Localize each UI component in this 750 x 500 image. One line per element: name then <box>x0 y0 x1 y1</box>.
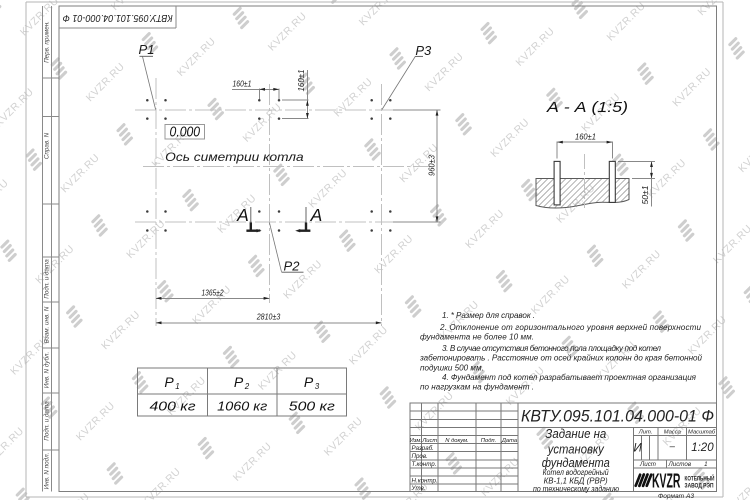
svg-text:P2: P2 <box>284 258 301 273</box>
svg-text:КОТЕЛЬНЫЙ: КОТЕЛЬНЫЙ <box>685 474 715 482</box>
svg-text:1: 1 <box>175 382 179 391</box>
svg-text:KVZR: KVZR <box>652 471 681 493</box>
svg-text:Подп. и дата: Подп. и дата <box>43 401 51 441</box>
svg-text:Разраб.: Разраб. <box>412 445 434 452</box>
svg-text:фундамента не более 10 мм.: фундамента не более 10 мм. <box>420 333 534 342</box>
svg-text:1365±2: 1365±2 <box>202 288 224 298</box>
svg-text:Подп.: Подп. <box>481 438 496 444</box>
svg-text:Справ. N: Справ. N <box>44 132 51 159</box>
svg-text:ЗАВОД РЭП: ЗАВОД РЭП <box>685 484 714 490</box>
svg-text:P: P <box>304 374 314 390</box>
svg-text:Масштаб: Масштаб <box>688 430 716 436</box>
svg-text:Дата: Дата <box>501 438 518 444</box>
svg-text:–: – <box>669 441 676 452</box>
svg-text:1060 кг: 1060 кг <box>217 400 267 414</box>
svg-text:A: A <box>310 205 323 225</box>
svg-text:забетонировать . Расстояние от: забетонировать . Расстояние от осей край… <box>419 354 702 363</box>
svg-text:960±3: 960±3 <box>426 155 436 176</box>
svg-text:3. В случае отсутствия бетонно: 3. В случае отсутствия бетонного пола пл… <box>442 344 661 353</box>
svg-text:Ось симетрии котла: Ось симетрии котла <box>165 150 304 164</box>
svg-text:Лист: Лист <box>639 461 656 468</box>
svg-text:Задание на: Задание на <box>545 426 606 441</box>
svg-text:Утв.: Утв. <box>411 485 426 492</box>
svg-text:Т.контр.: Т.контр. <box>412 461 437 468</box>
svg-text:Инв. N дубл.: Инв. N дубл. <box>43 352 51 388</box>
svg-text:Изм.: Изм. <box>410 438 422 444</box>
svg-text:Перв. примен.: Перв. примен. <box>44 21 51 63</box>
svg-text:50±1: 50±1 <box>640 186 650 205</box>
svg-text:Инв. N подл.: Инв. N подл. <box>43 453 51 490</box>
svg-text:А - А (1:5): А - А (1:5) <box>546 99 628 116</box>
svg-text:2810±3: 2810±3 <box>256 312 281 322</box>
svg-text:160±1: 160±1 <box>575 131 596 141</box>
svg-text:КВТУ.095.101.04.000-01 Ф: КВТУ.095.101.04.000-01 Ф <box>521 407 714 425</box>
svg-text:Подп. и дата: Подп. и дата <box>43 259 51 299</box>
svg-text:P1: P1 <box>139 42 155 57</box>
svg-text:500 кг: 500 кг <box>289 400 335 414</box>
svg-text:Взам. инв. N: Взам. инв. N <box>44 306 51 343</box>
svg-text:N докум.: N докум. <box>445 438 468 444</box>
svg-text:P3: P3 <box>415 43 432 58</box>
svg-text:P: P <box>164 374 174 390</box>
svg-text:Н.контр.: Н.контр. <box>412 477 438 484</box>
svg-text:Пров.: Пров. <box>412 453 428 460</box>
svg-text:Масса: Масса <box>664 430 682 436</box>
svg-text:1. * Размер для справок .: 1. * Размер для справок . <box>442 311 535 320</box>
svg-text:Листов: Листов <box>668 461 692 468</box>
svg-text:1: 1 <box>704 461 707 468</box>
svg-text:по техническому заданию: по техническому заданию <box>533 485 619 494</box>
svg-text:1:20: 1:20 <box>691 442 714 454</box>
svg-text:P: P <box>234 374 244 390</box>
svg-text:Лист: Лист <box>421 438 437 444</box>
svg-text:2: 2 <box>244 382 250 391</box>
svg-text:3: 3 <box>315 382 320 391</box>
svg-text:A: A <box>236 205 249 225</box>
svg-text:Формат А3: Формат А3 <box>658 493 694 500</box>
svg-text:2. Отклонение от горизонтально: 2. Отклонение от горизонтального уровня … <box>439 323 701 332</box>
svg-text:И: И <box>633 442 642 454</box>
svg-text:160±1: 160±1 <box>296 70 306 92</box>
svg-text:КВТУ.095.101.04.000-01 Ф: КВТУ.095.101.04.000-01 Ф <box>63 12 173 23</box>
svg-text:подушки 500 мм.: подушки 500 мм. <box>420 363 484 372</box>
svg-text:по нагрузкам на фундамент .: по нагрузкам на фундамент . <box>420 383 534 392</box>
svg-text:400 кг: 400 кг <box>150 400 196 414</box>
svg-text:Лит.: Лит. <box>638 430 653 436</box>
svg-text:160±1: 160±1 <box>233 79 252 89</box>
svg-text:0.000: 0.000 <box>170 125 201 141</box>
svg-text:4. Фундамент под котел разраба: 4. Фундамент под котел разрабатывает про… <box>442 373 697 382</box>
